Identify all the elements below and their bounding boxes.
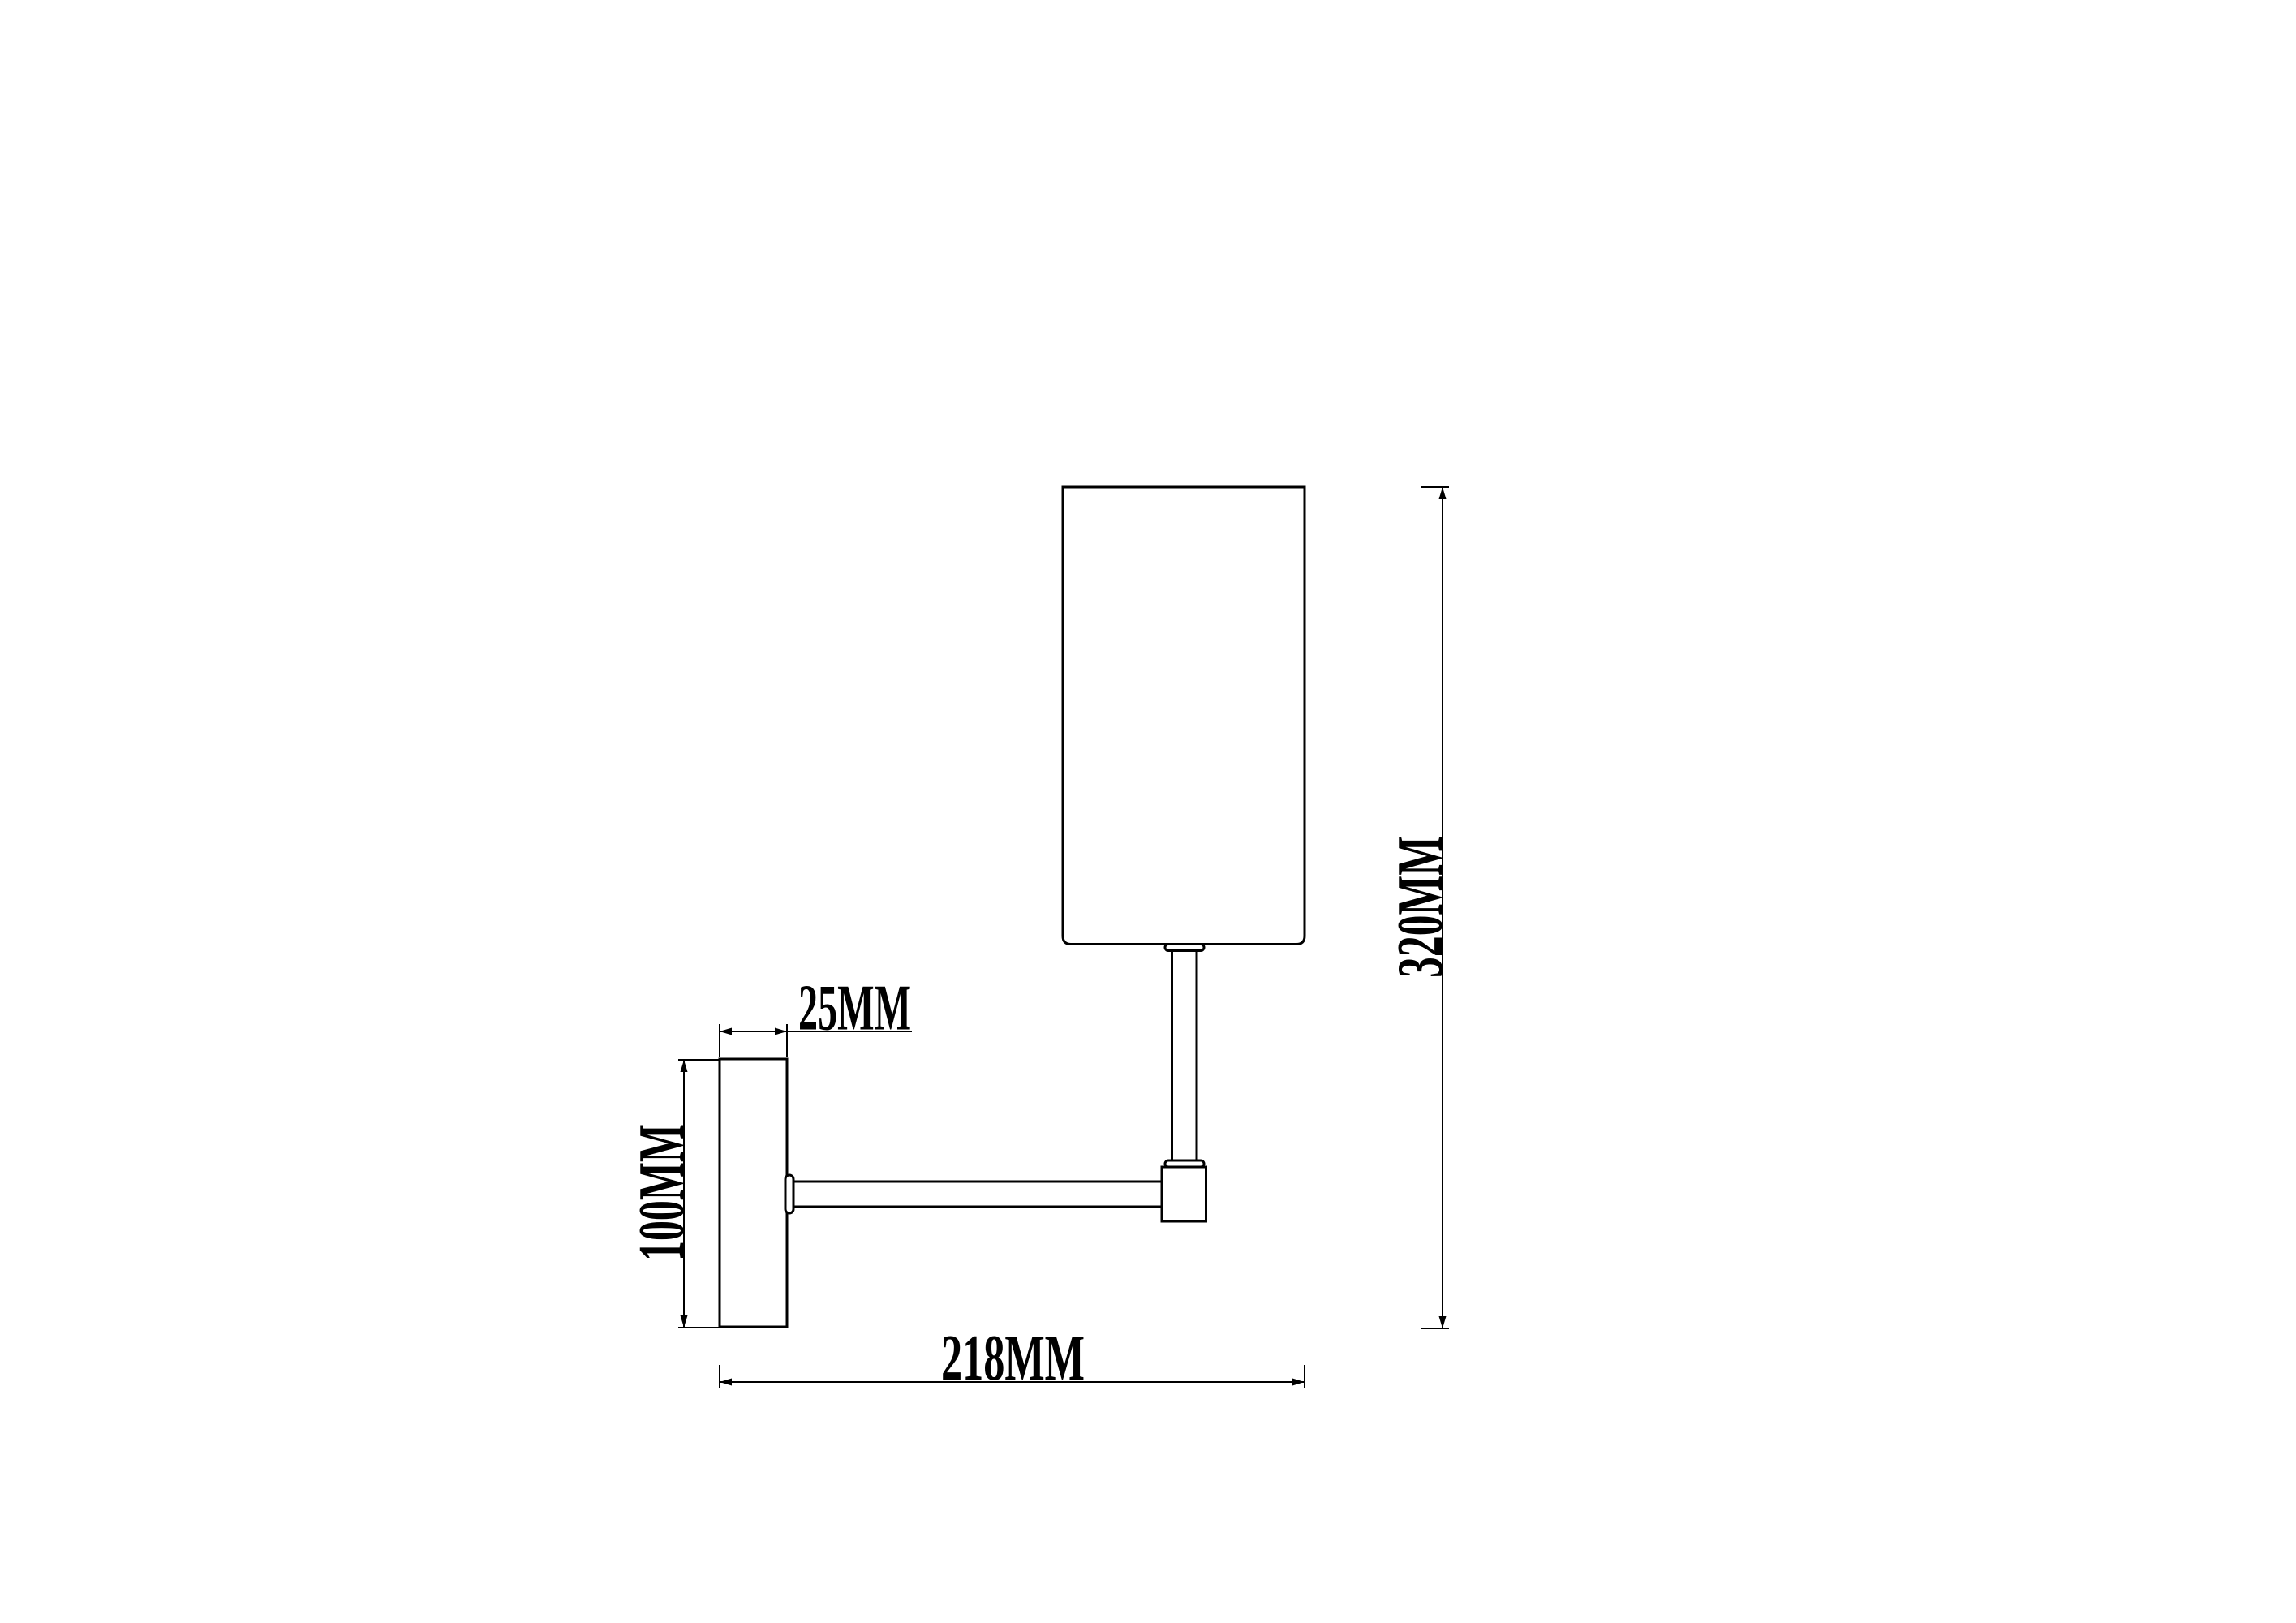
svg-text:218MM: 218MM — [941, 1323, 1085, 1394]
svg-text:100MM: 100MM — [626, 1124, 698, 1261]
svg-text:320MM: 320MM — [1385, 836, 1456, 978]
svg-text:25MM: 25MM — [798, 973, 911, 1044]
